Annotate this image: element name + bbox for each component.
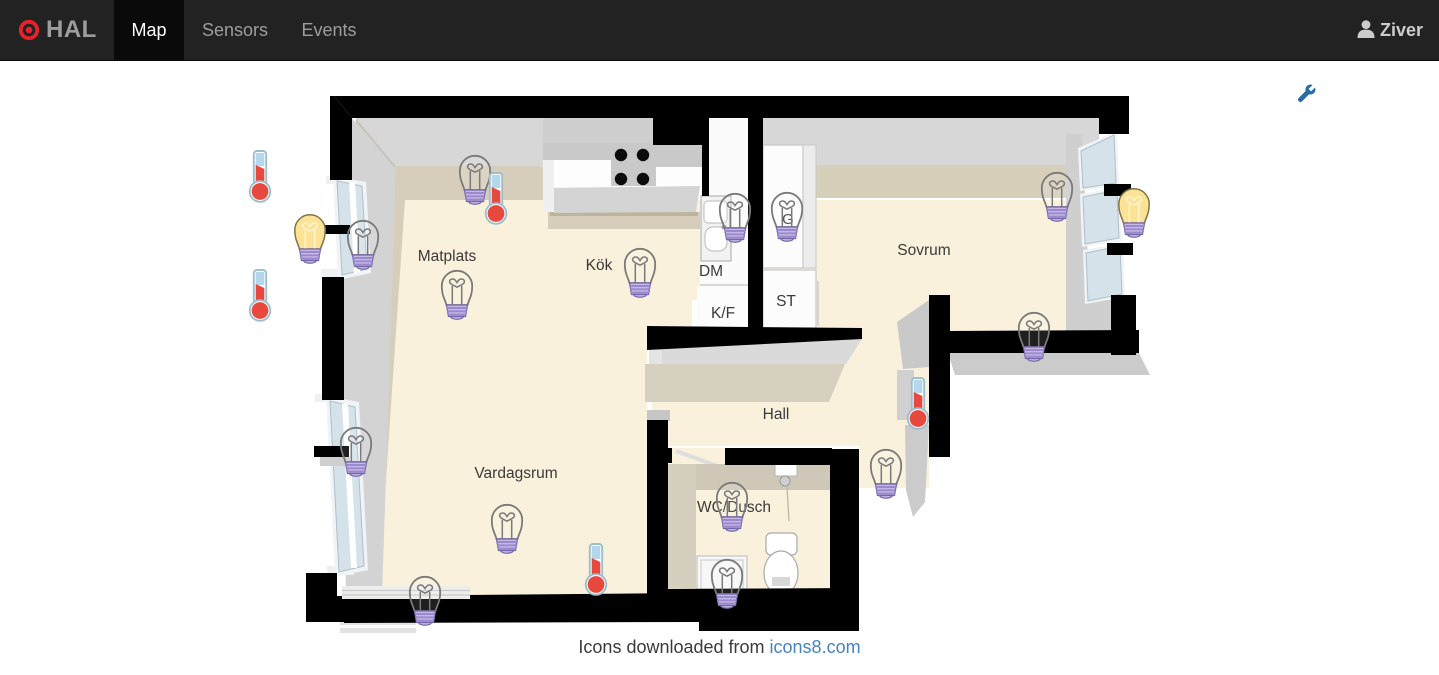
- svg-text:Matplats: Matplats: [418, 248, 477, 265]
- svg-text:Vardagsrum: Vardagsrum: [474, 465, 557, 482]
- svg-text:Sovrum: Sovrum: [897, 242, 950, 259]
- svg-text:Kök: Kök: [586, 257, 613, 274]
- svg-text:Hall: Hall: [763, 406, 790, 423]
- svg-text:DM: DM: [699, 263, 723, 280]
- svg-text:ST: ST: [776, 293, 796, 310]
- svg-text:K/F: K/F: [711, 305, 735, 322]
